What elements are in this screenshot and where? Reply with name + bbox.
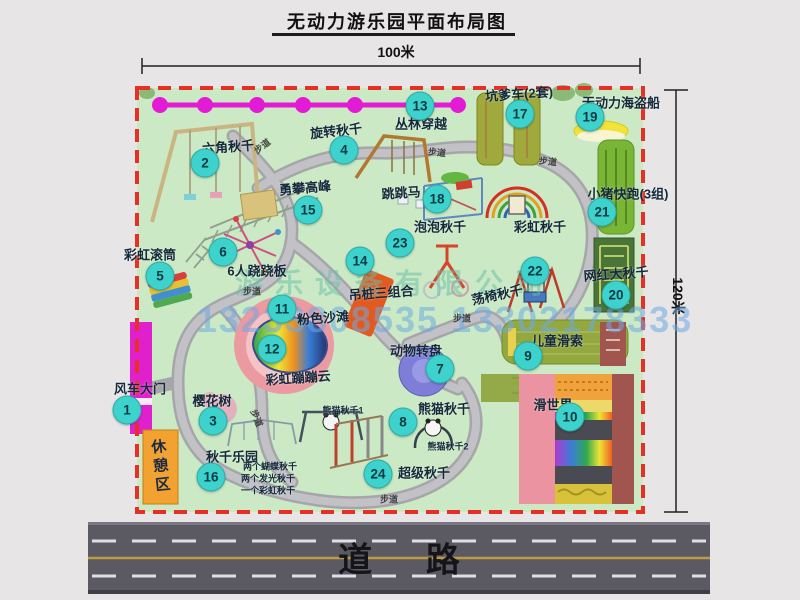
trail-label: 步道 bbox=[427, 145, 446, 160]
feature-label: 跳跳马 bbox=[381, 181, 421, 203]
feature-badge: 11 bbox=[268, 295, 297, 324]
feature-label: 6人跷跷板 bbox=[227, 261, 286, 280]
feature-label: 风车大门 bbox=[114, 379, 166, 398]
road-label: 道 路 bbox=[316, 533, 482, 582]
feature-badge: 2 bbox=[191, 149, 220, 178]
park-layout-plan: 无动力游乐园平面布局图 100米 120米 游乐设备有限公司 132338085… bbox=[0, 0, 800, 600]
feature-badge: 7 bbox=[426, 355, 455, 384]
feature-badge: 6 bbox=[209, 238, 238, 267]
feature-badge: 1 bbox=[113, 396, 142, 425]
trail-label: 步道 bbox=[538, 154, 557, 169]
extra-label: 彩虹秋千 bbox=[514, 217, 566, 236]
extra-label: 熊猫秋千2 bbox=[427, 440, 468, 453]
extra-label: 一个彩虹秋千 bbox=[241, 484, 295, 497]
feature-badge: 19 bbox=[576, 103, 605, 132]
feature-badge: 14 bbox=[346, 247, 375, 276]
feature-label: 泡泡秋千 bbox=[414, 217, 466, 236]
trail-label: 步道 bbox=[380, 493, 398, 506]
trail-label: 步道 bbox=[243, 285, 261, 298]
feature-label: 熊猫秋千 bbox=[418, 399, 470, 418]
slide-world-icon bbox=[519, 374, 634, 504]
trail-label: 步道 bbox=[453, 312, 471, 325]
width-dimension-label: 100米 bbox=[377, 42, 414, 62]
extra-label: 熊猫秋千1 bbox=[322, 404, 363, 417]
feature-badge: 10 bbox=[556, 403, 585, 432]
feature-badge: 21 bbox=[588, 198, 617, 227]
feature-badge: 16 bbox=[197, 463, 226, 492]
feature-badge: 22 bbox=[521, 257, 550, 286]
feature-badge: 13 bbox=[406, 92, 435, 121]
feature-badge: 3 bbox=[199, 407, 228, 436]
feature-badge: 20 bbox=[602, 281, 631, 310]
feature-badge: 12 bbox=[258, 335, 287, 364]
feature-badge: 15 bbox=[294, 196, 323, 225]
title-underline bbox=[272, 33, 515, 36]
feature-label: 超级秋千 bbox=[398, 463, 450, 482]
page-title: 无动力游乐园平面布局图 bbox=[287, 8, 507, 34]
feature-badge: 24 bbox=[364, 460, 393, 489]
feature-badge: 9 bbox=[514, 342, 543, 371]
feature-label: 彩虹滚筒 bbox=[124, 245, 176, 264]
feature-label: 粉色沙滩 bbox=[296, 306, 349, 329]
feature-badge: 23 bbox=[386, 229, 415, 258]
feature-badge: 17 bbox=[506, 100, 535, 129]
feature-badge: 8 bbox=[389, 408, 418, 437]
feature-badge: 4 bbox=[330, 136, 359, 165]
feature-badge: 5 bbox=[146, 262, 175, 291]
feature-badge: 18 bbox=[423, 185, 452, 214]
